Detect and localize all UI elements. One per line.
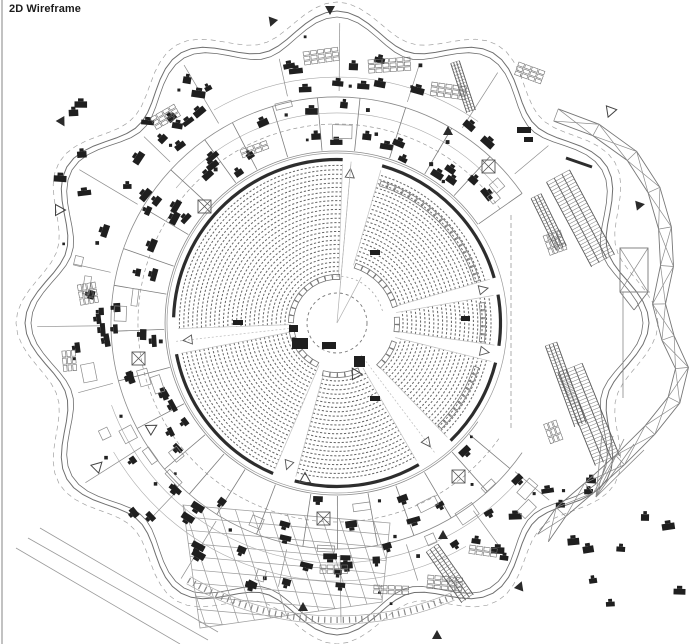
shelf-grid bbox=[62, 350, 77, 371]
stair-run bbox=[547, 170, 615, 267]
elevator-symbol bbox=[132, 352, 145, 365]
shelf-grid bbox=[544, 420, 563, 444]
walkway-tick-band bbox=[187, 577, 455, 624]
shelf-grid bbox=[303, 47, 339, 65]
stair-run bbox=[558, 363, 620, 465]
stair-run bbox=[426, 544, 473, 603]
markers bbox=[56, 6, 646, 639]
shelf-grid bbox=[543, 230, 567, 255]
truss-tower bbox=[620, 248, 648, 310]
entrance-structure bbox=[426, 61, 688, 603]
elevator-symbol bbox=[198, 200, 211, 213]
floor-plan-canvas[interactable] bbox=[0, 0, 700, 644]
stair-run bbox=[451, 61, 476, 113]
shelf-grid bbox=[514, 62, 544, 84]
elevator-symbol bbox=[482, 160, 495, 173]
truss-band bbox=[538, 109, 689, 542]
shelf-grid bbox=[368, 57, 411, 73]
elevator-symbol bbox=[452, 470, 465, 483]
